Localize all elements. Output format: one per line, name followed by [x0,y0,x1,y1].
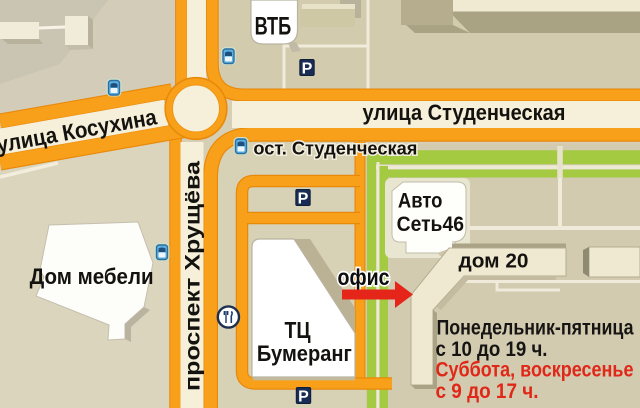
svg-text:ост. Студенческая: ост. Студенческая [253,138,417,158]
svg-text:дом 20: дом 20 [459,250,529,273]
svg-text:ТЦ: ТЦ [285,317,311,343]
svg-text:с 9 до 17 ч.: с 9 до 17 ч. [436,380,539,403]
svg-text:проспект Хрущёва: проспект Хрущёва [181,160,205,391]
svg-text:Сеть46: Сеть46 [397,213,464,236]
svg-text:Авто: Авто [398,189,443,213]
svg-text:Дом мебели: Дом мебели [30,264,154,289]
svg-text:улица Студенческая: улица Студенческая [363,100,566,125]
svg-text:Понедельник-пятница: Понедельник-пятница [437,316,634,339]
svg-text:Бумеранг: Бумеранг [257,341,352,366]
svg-text:офис: офис [338,264,390,290]
svg-text:ВТБ: ВТБ [255,13,292,41]
svg-text:Суббота, воскресенье: Суббота, воскресенье [436,359,634,382]
